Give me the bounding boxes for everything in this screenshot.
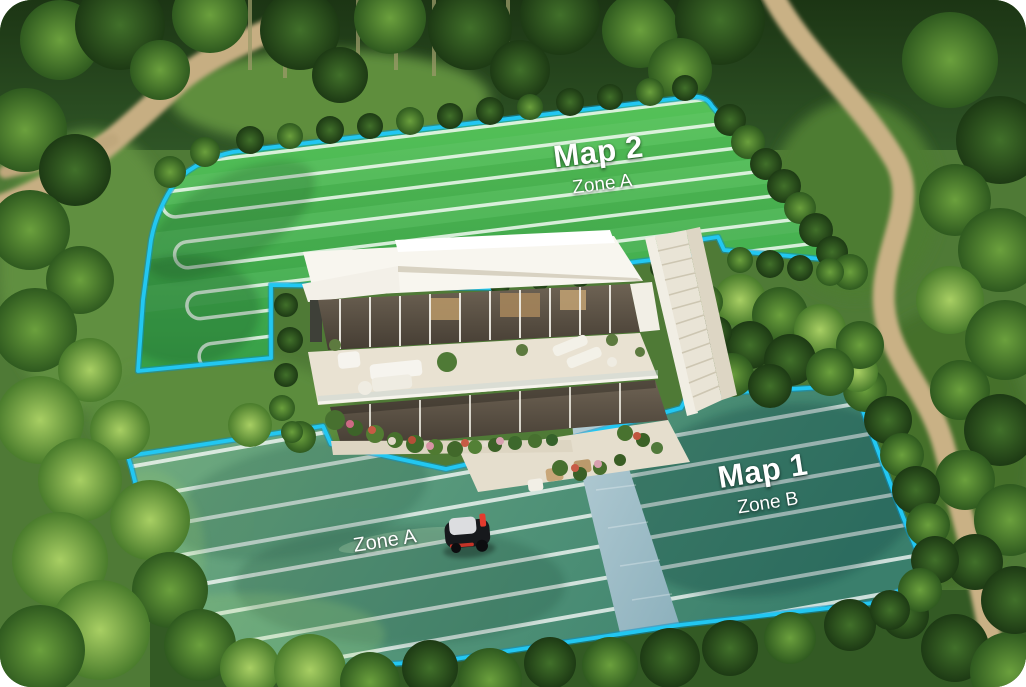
aerial-property-image: Map 2 Zone A Map 1 Zone B Zone A <box>0 0 1026 687</box>
aerial-scene <box>0 0 1026 687</box>
